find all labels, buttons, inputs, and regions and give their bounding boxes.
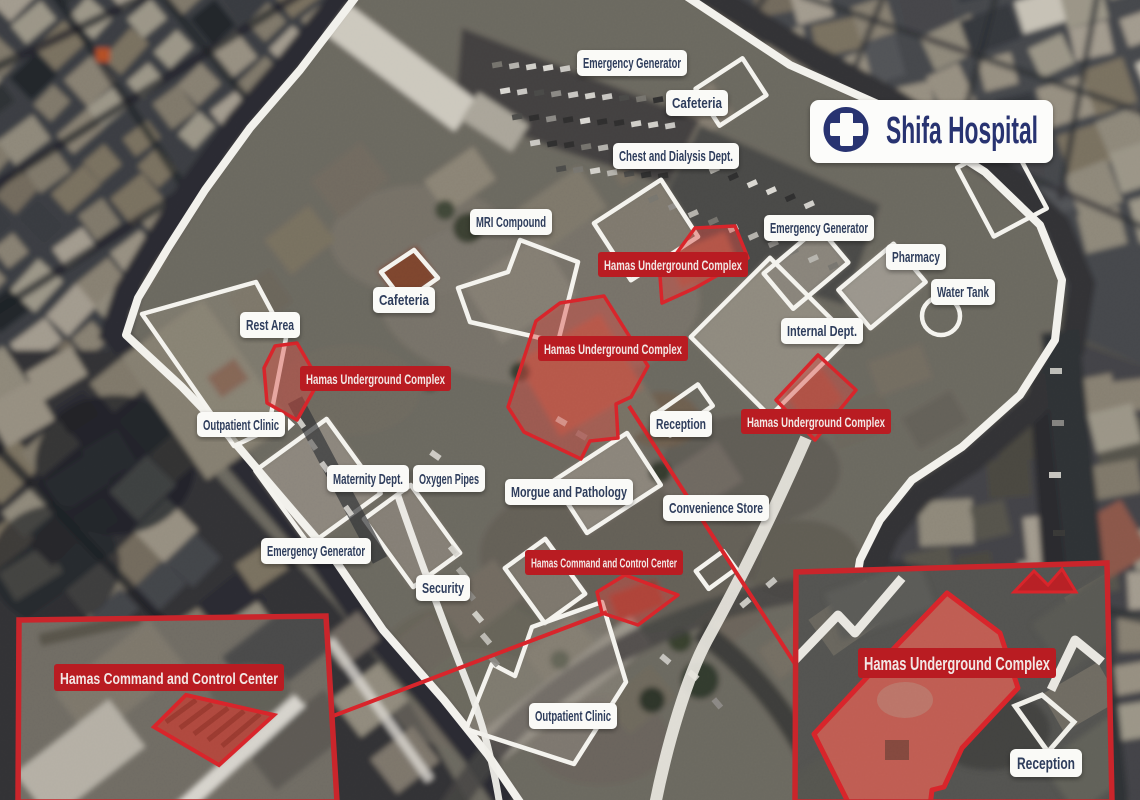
svg-text:Convenience Store: Convenience Store [669, 500, 763, 517]
svg-text:Emergency Generator: Emergency Generator [267, 543, 365, 560]
svg-text:Maternity Dept.: Maternity Dept. [333, 471, 403, 488]
svg-text:Rest Area: Rest Area [246, 317, 294, 334]
svg-text:Emergency Generator: Emergency Generator [583, 55, 681, 72]
svg-text:Hamas Command and Control Cent: Hamas Command and Control Center [60, 671, 278, 688]
svg-text:Hamas Underground Complex: Hamas Underground Complex [604, 258, 742, 273]
svg-text:Security: Security [422, 580, 464, 597]
svg-text:Oxygen Pipes: Oxygen Pipes [419, 471, 479, 488]
svg-text:Reception: Reception [656, 416, 706, 433]
svg-text:Cafeteria: Cafeteria [379, 292, 430, 309]
svg-text:Chest and Dialysis Dept.: Chest and Dialysis Dept. [619, 148, 733, 165]
svg-text:Hamas Underground Complex: Hamas Underground Complex [864, 654, 1050, 674]
svg-text:Outpatient Clinic: Outpatient Clinic [203, 417, 279, 434]
svg-text:Cafeteria: Cafeteria [672, 95, 723, 112]
svg-text:Pharmacy: Pharmacy [892, 249, 940, 266]
svg-text:Emergency Generator: Emergency Generator [770, 220, 868, 237]
svg-text:Shifa Hospital: Shifa Hospital [886, 110, 1038, 152]
svg-text:Reception: Reception [1017, 754, 1075, 773]
svg-text:Outpatient Clinic: Outpatient Clinic [535, 708, 611, 725]
svg-text:Hamas Underground Complex: Hamas Underground Complex [747, 415, 885, 430]
svg-text:Internal Dept.: Internal Dept. [787, 323, 857, 340]
svg-text:Water Tank: Water Tank [937, 284, 989, 301]
svg-text:Hamas Underground Complex: Hamas Underground Complex [544, 342, 682, 357]
svg-text:MRI Compound: MRI Compound [476, 214, 546, 231]
svg-text:Hamas Underground Complex: Hamas Underground Complex [306, 372, 445, 387]
svg-text:Hamas Command and Control Cent: Hamas Command and Control Center [531, 557, 677, 571]
svg-text:Morgue and Pathology: Morgue and Pathology [511, 484, 627, 501]
